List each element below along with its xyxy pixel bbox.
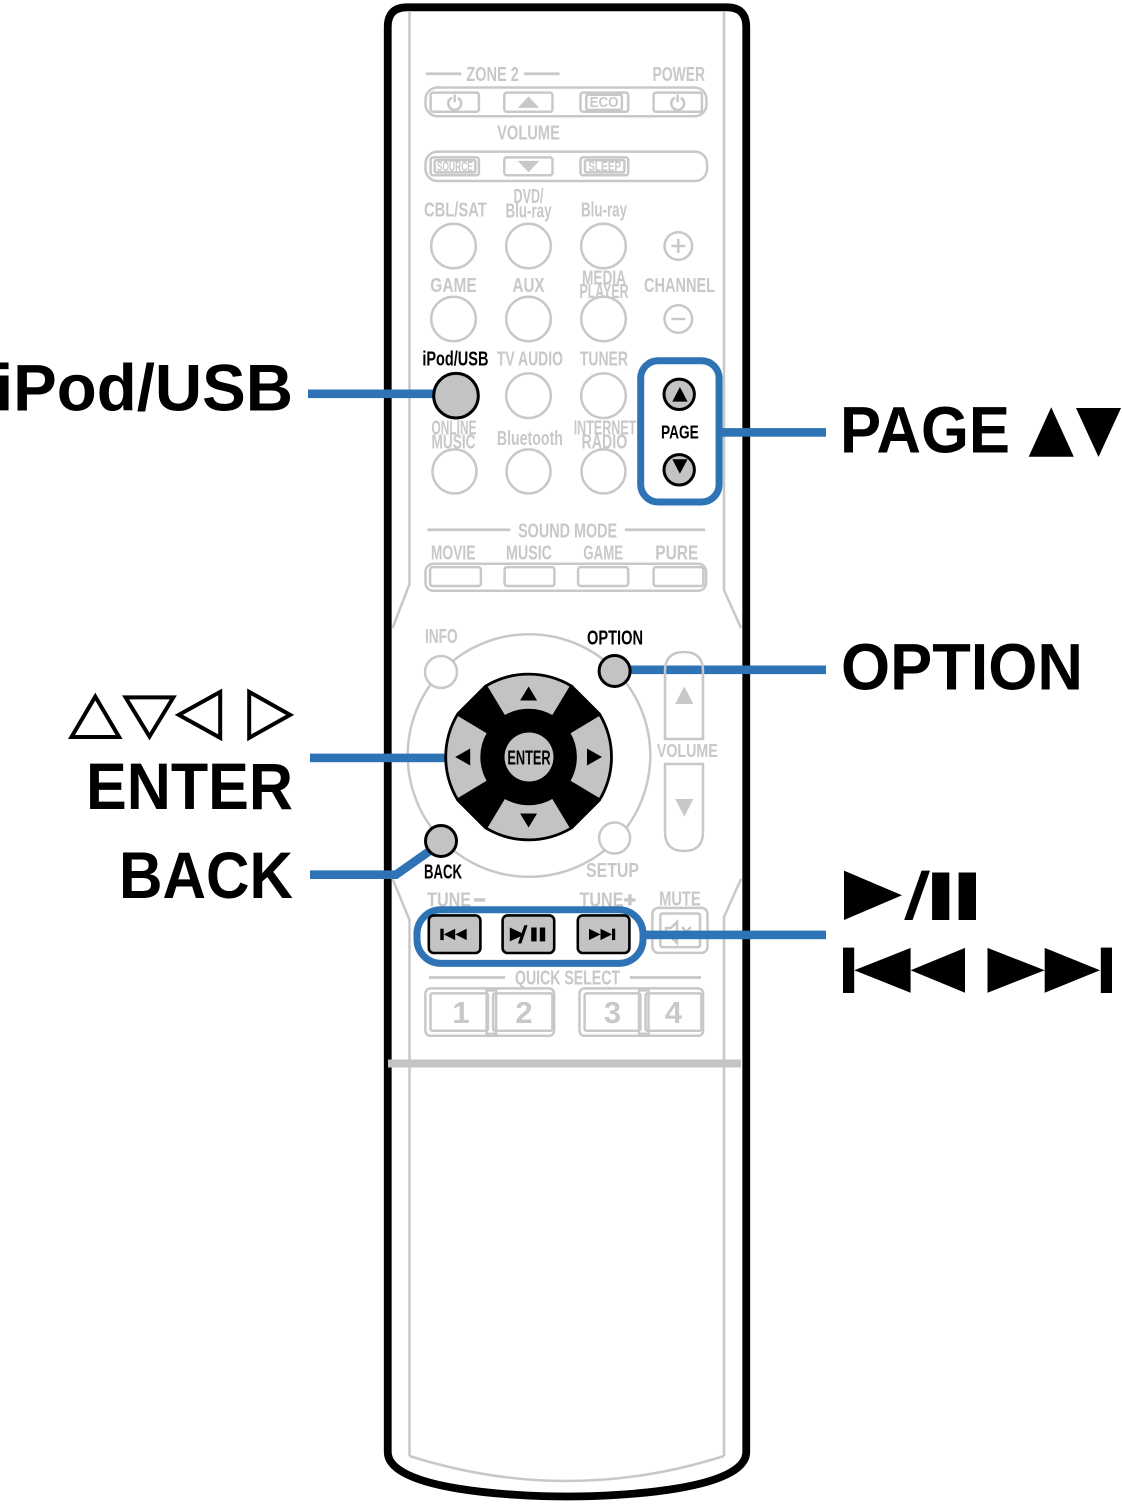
svg-text:GAME: GAME xyxy=(430,274,476,297)
svg-text:Bluetooth: Bluetooth xyxy=(497,427,563,450)
svg-text:OPTION: OPTION xyxy=(841,630,1083,704)
svg-text:3: 3 xyxy=(604,995,621,1030)
svg-text:MUSIC: MUSIC xyxy=(506,542,552,565)
svg-text:QUICK SELECT: QUICK SELECT xyxy=(515,967,620,990)
svg-text:ZONE 2: ZONE 2 xyxy=(466,63,519,86)
svg-text:SOUND MODE: SOUND MODE xyxy=(518,519,617,542)
svg-text:PAGE: PAGE xyxy=(661,422,699,443)
svg-text:CHANNEL: CHANNEL xyxy=(644,274,715,297)
svg-text:TV AUDIO: TV AUDIO xyxy=(497,348,563,371)
svg-text:BACK: BACK xyxy=(119,838,293,912)
svg-text:INFO: INFO xyxy=(425,625,458,648)
svg-text:Blu-ray: Blu-ray xyxy=(506,200,552,223)
svg-text:PAGE: PAGE xyxy=(840,393,1010,467)
svg-text:POWER: POWER xyxy=(653,63,706,86)
svg-text:GAME: GAME xyxy=(583,542,623,565)
svg-text:ECO: ECO xyxy=(590,95,619,111)
svg-text:1: 1 xyxy=(452,995,469,1030)
svg-text:PLAYER: PLAYER xyxy=(580,280,629,303)
svg-text:iPod/USB: iPod/USB xyxy=(422,348,488,371)
svg-text:AUX: AUX xyxy=(513,274,545,297)
svg-text:CBL/SAT: CBL/SAT xyxy=(424,199,487,222)
svg-text:4: 4 xyxy=(665,995,683,1030)
svg-text:ENTER: ENTER xyxy=(86,749,293,823)
svg-text:OPTION: OPTION xyxy=(587,627,643,650)
svg-text:ENTER: ENTER xyxy=(507,747,551,769)
svg-text:PURE: PURE xyxy=(655,542,698,565)
svg-text:VOLUME: VOLUME xyxy=(657,741,718,761)
svg-text:iPod/USB: iPod/USB xyxy=(0,351,293,425)
svg-text:SLEEP: SLEEP xyxy=(588,159,621,174)
svg-text:VOLUME: VOLUME xyxy=(497,122,560,145)
svg-text:Blu-ray: Blu-ray xyxy=(581,199,627,222)
svg-text:SETUP: SETUP xyxy=(586,859,639,882)
svg-text:TUNER: TUNER xyxy=(580,348,628,371)
svg-text:2: 2 xyxy=(515,995,532,1030)
svg-text:BACK: BACK xyxy=(424,861,462,884)
svg-text:SOURCE: SOURCE xyxy=(437,159,473,174)
svg-text:MOVIE: MOVIE xyxy=(431,542,476,565)
